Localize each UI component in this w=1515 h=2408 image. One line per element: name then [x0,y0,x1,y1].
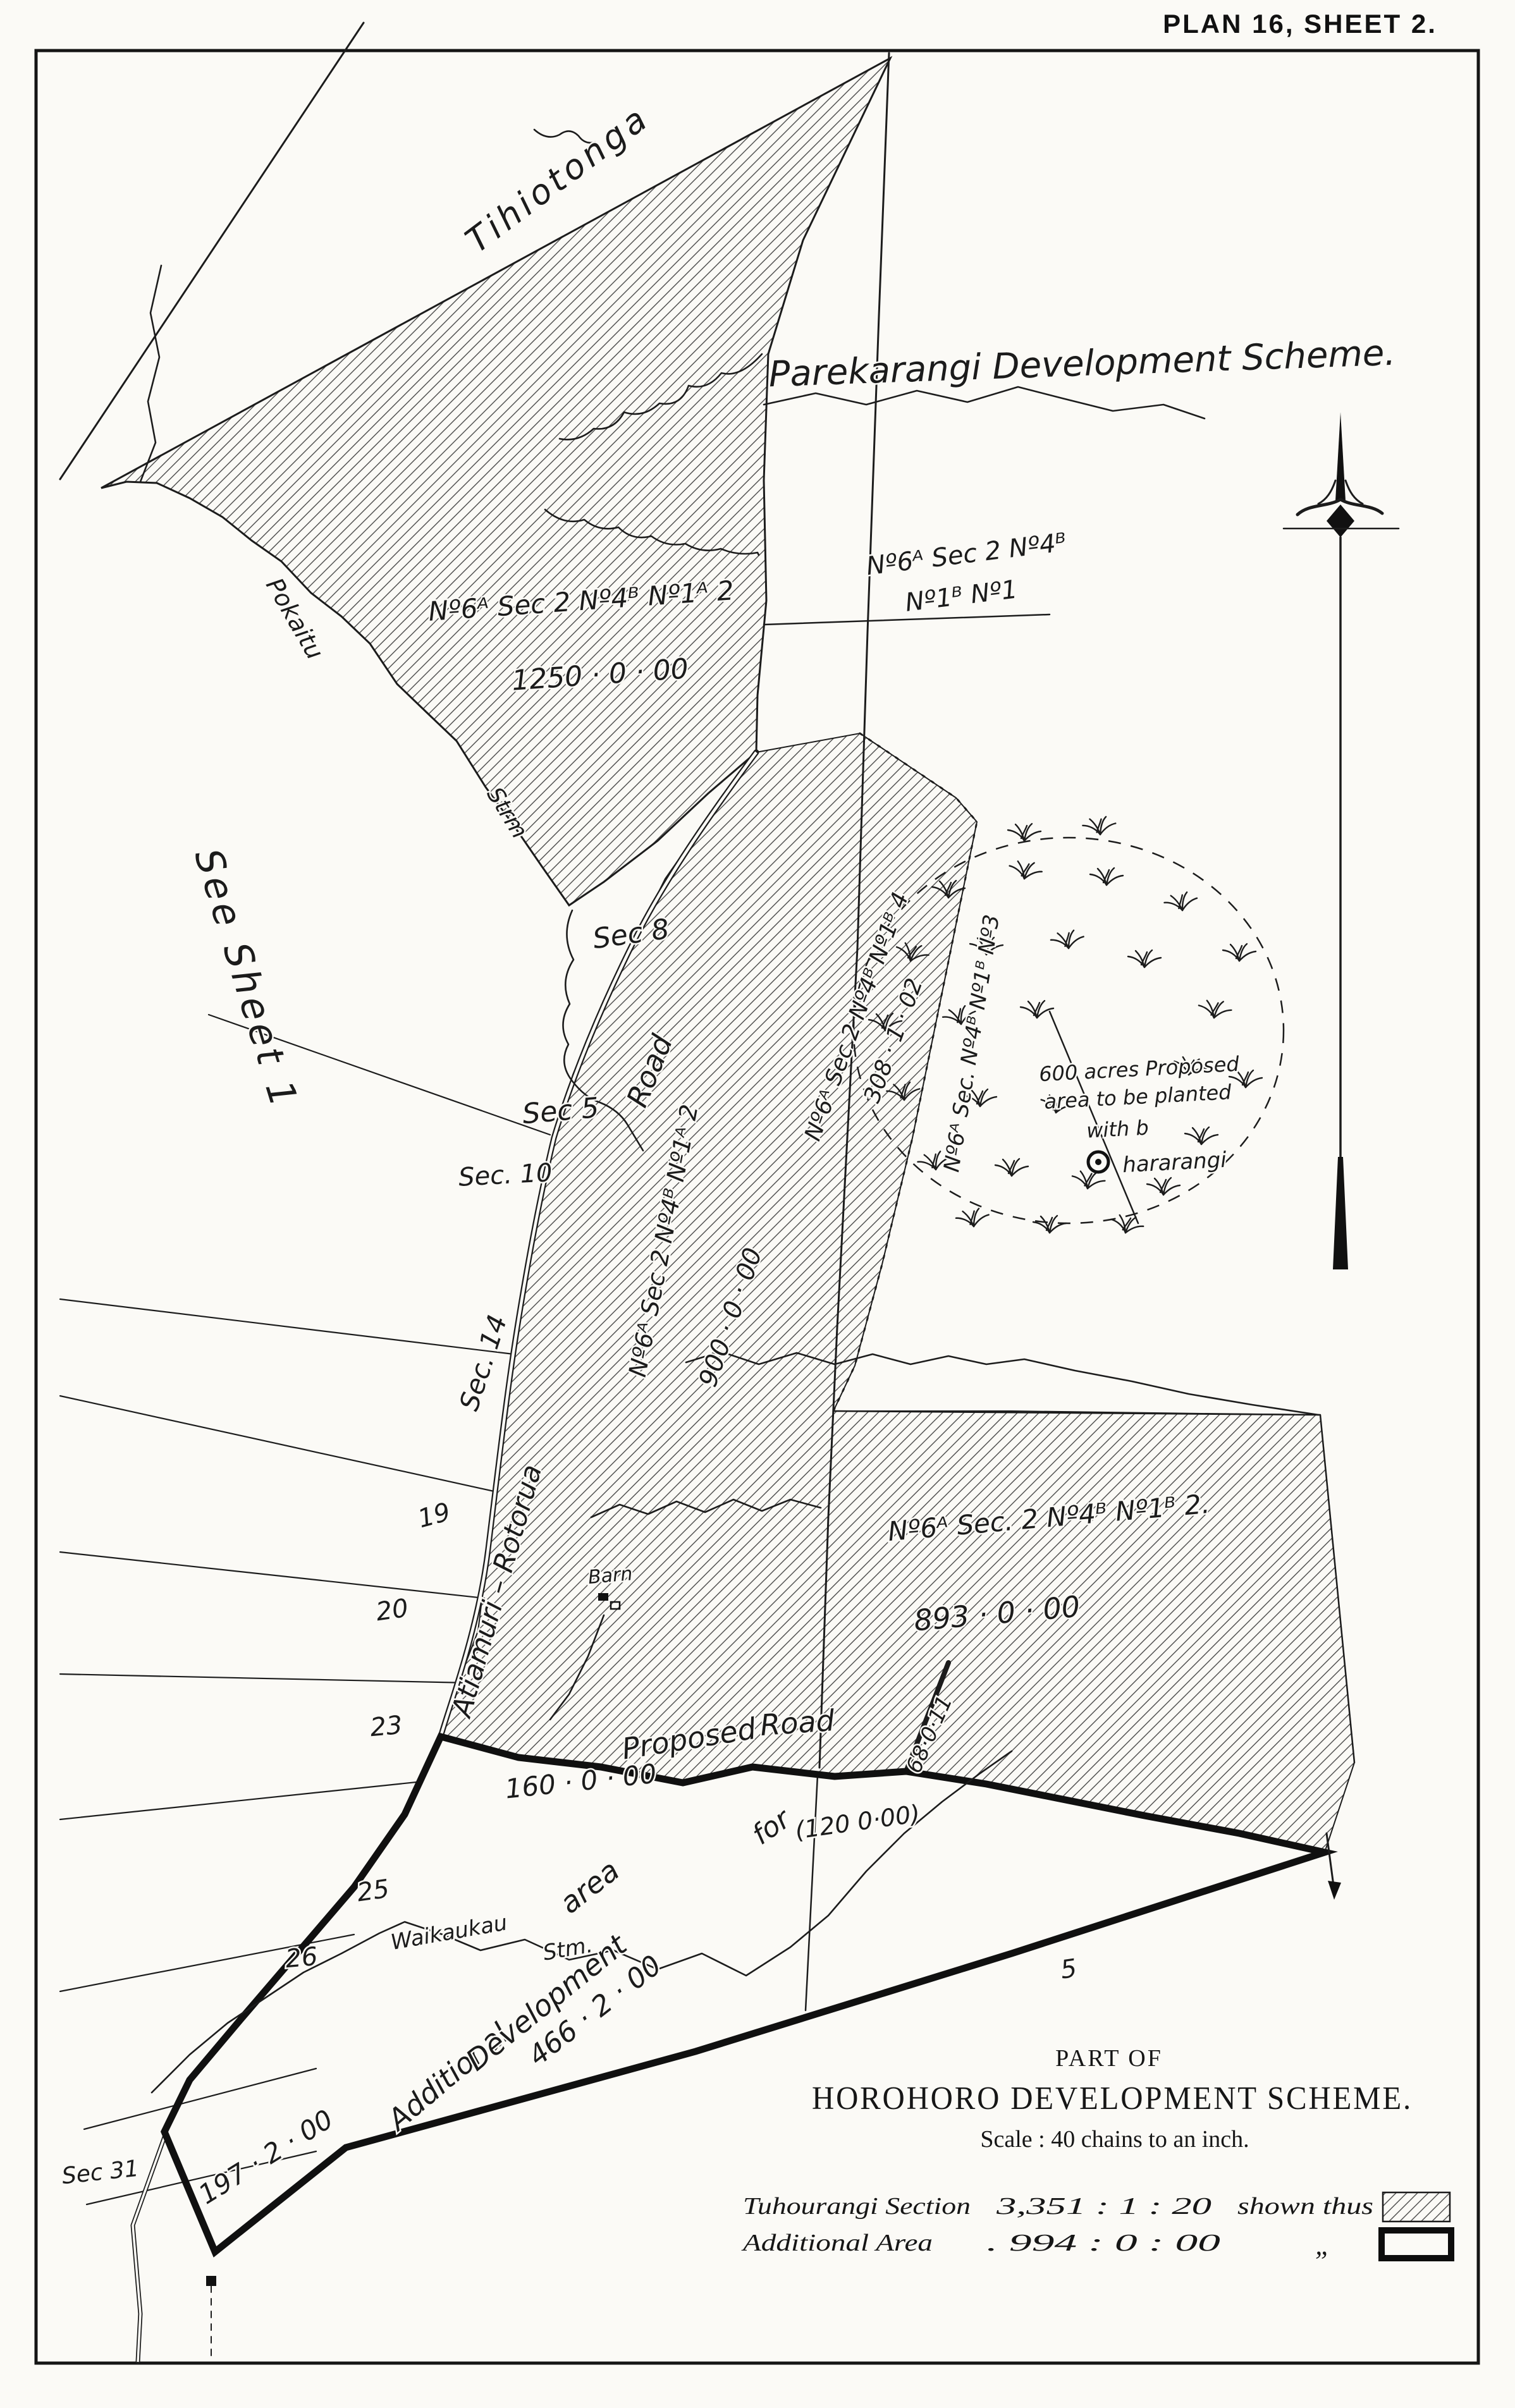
lot-19-label: 19 [415,1498,453,1534]
section-31-label: Sec 31 [61,2156,140,2190]
parekarangi-scheme-label: Parekarangi Development Scheme. [768,333,1397,396]
lot-25-label: 25 [355,1874,391,1908]
legend-bold-outline-swatch [1382,2230,1451,2258]
section-10-label: Sec. 10 [458,1158,553,1192]
scanned-plan-page: PLAN 16, SHEET 2. Tihiotonga Parekarangi… [0,0,1515,2408]
legend-row1-figures: 3,351 : 1 : 20 [995,2193,1211,2220]
parcel-ne-name-line2: Nº1ᴮ Nº1 [904,575,1019,617]
legend-row1-suffix: shown thus [1237,2193,1373,2220]
title-scheme-name: HOROHORO DEVELOPMENT SCHEME. [812,2081,1413,2117]
section-5-label: Sec 5 [521,1092,600,1130]
planted-note-line2: area to be planted [1043,1080,1232,1113]
trig-station-icon [1088,1152,1108,1172]
area-197-label: 197 · 2 · 00 [193,2103,338,2210]
legend: Tuhourangi Section 3,351 : 1 : 20 shown … [740,2192,1451,2261]
survey-mark-icon [206,2276,216,2362]
see-sheet-1-label: See Sheet 1 [185,843,307,1115]
area-word-label: area [553,1853,626,1920]
plan-map-canvas: PLAN 16, SHEET 2. Tihiotonga Parekarangi… [0,0,1515,2408]
title-part-of: PART OF [1055,2045,1163,2072]
legend-row2-name: Additional Area [740,2230,933,2256]
lot-5-label: 5 [1058,1954,1079,1985]
plan-sheet-title: PLAN 16, SHEET 2. [1163,9,1437,39]
area-120-label: (120 0·00) [794,1800,922,1845]
title-scale: Scale : 40 chains to an inch. [980,2126,1249,2153]
parcel-ne-name-line1: Nº6ᴬ Sec 2 Nº4ᴮ [865,528,1069,581]
trig-name-label: hararangi [1122,1147,1227,1178]
planted-note-line3: with b [1086,1115,1149,1142]
survey-arrow-icon [1327,1833,1341,1900]
lot-20-label: 20 [374,1594,410,1627]
lot-26-label: 26 [285,1942,319,1974]
for-word-label: for [746,1802,797,1851]
proposed-road-label-2: Road [759,1703,836,1742]
legend-row2-figures: . 994 : 0 : 00 [986,2230,1220,2256]
legend-row1-name: Tuhourangi Section [743,2193,971,2220]
legend-hatched-swatch [1383,2192,1450,2222]
barn-label: Barn [587,1563,634,1589]
additional-area-bold-outline [164,1737,1325,2252]
additional-area-inner-boundary [806,1775,818,2010]
legend-row2-ditto: „ [1315,2230,1330,2261]
lot-23-label: 23 [369,1711,404,1742]
north-arrow-icon [1284,412,1399,1269]
